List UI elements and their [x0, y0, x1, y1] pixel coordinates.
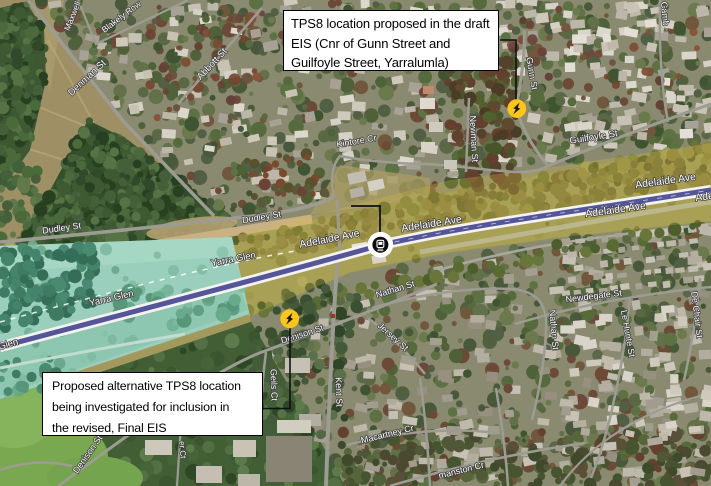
- svg-text:Geils Ct: Geils Ct: [268, 369, 279, 402]
- svg-text:Kent St: Kent St: [333, 377, 344, 407]
- svg-text:Camb: Camb: [659, 1, 671, 26]
- svg-text:er Ct: er Ct: [177, 441, 188, 460]
